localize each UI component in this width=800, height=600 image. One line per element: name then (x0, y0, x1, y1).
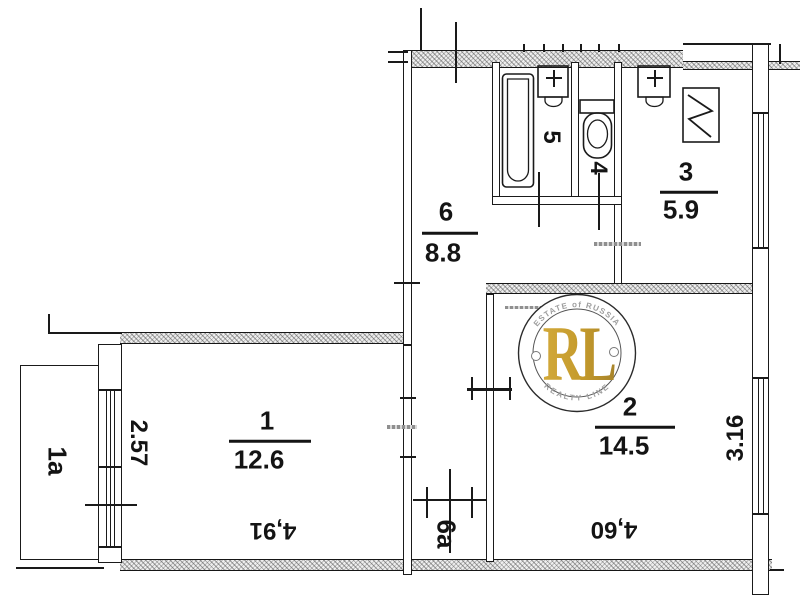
stove-zigzag (688, 95, 712, 137)
bath-sink-lip (545, 97, 562, 107)
room-3-number: 3 (679, 157, 693, 188)
room-1a-label: 1a (42, 447, 73, 476)
fixtures-layer (0, 0, 800, 600)
dim-room2-width: 3.16 (722, 415, 750, 462)
watermark-left-dot (532, 352, 541, 361)
kitchen-sink-lip (646, 97, 663, 107)
dim-room1-width: 2.57 (124, 420, 152, 467)
realty-watermark: ESTATE of RUSSIA REALTY LINE RL (512, 288, 642, 418)
floor-plan: 1 12.6 2 14.5 3 5.9 6 8.8 5 4 1a 6a 2.57… (0, 0, 800, 600)
room-6-area: 8.8 (425, 238, 461, 269)
room-2-fraction-bar (595, 426, 675, 429)
bathtub-inner (508, 79, 529, 181)
room-6-number: 6 (439, 197, 453, 228)
room-3-area: 5.9 (663, 195, 699, 226)
room-6a-label: 6a (431, 520, 462, 549)
dim-room2-length: 4,60 (591, 515, 638, 543)
room-1-area: 12.6 (234, 445, 285, 476)
dim-room1-length: 4,91 (250, 516, 297, 544)
room-4-label: 4 (584, 161, 612, 174)
toilet-tank-icon (580, 100, 614, 113)
faucet-cross-icon (647, 70, 663, 87)
faucet-cross-icon (546, 70, 562, 87)
toilet-seat-icon (588, 120, 608, 148)
room-6-fraction-bar (422, 232, 478, 235)
watermark-initials: RL (543, 310, 615, 397)
room-1-fraction-bar (229, 440, 311, 443)
room-2-area: 14.5 (599, 431, 650, 462)
room-3-fraction-bar (660, 191, 718, 194)
room-1-number: 1 (260, 406, 274, 437)
room-5-label: 5 (537, 130, 565, 143)
